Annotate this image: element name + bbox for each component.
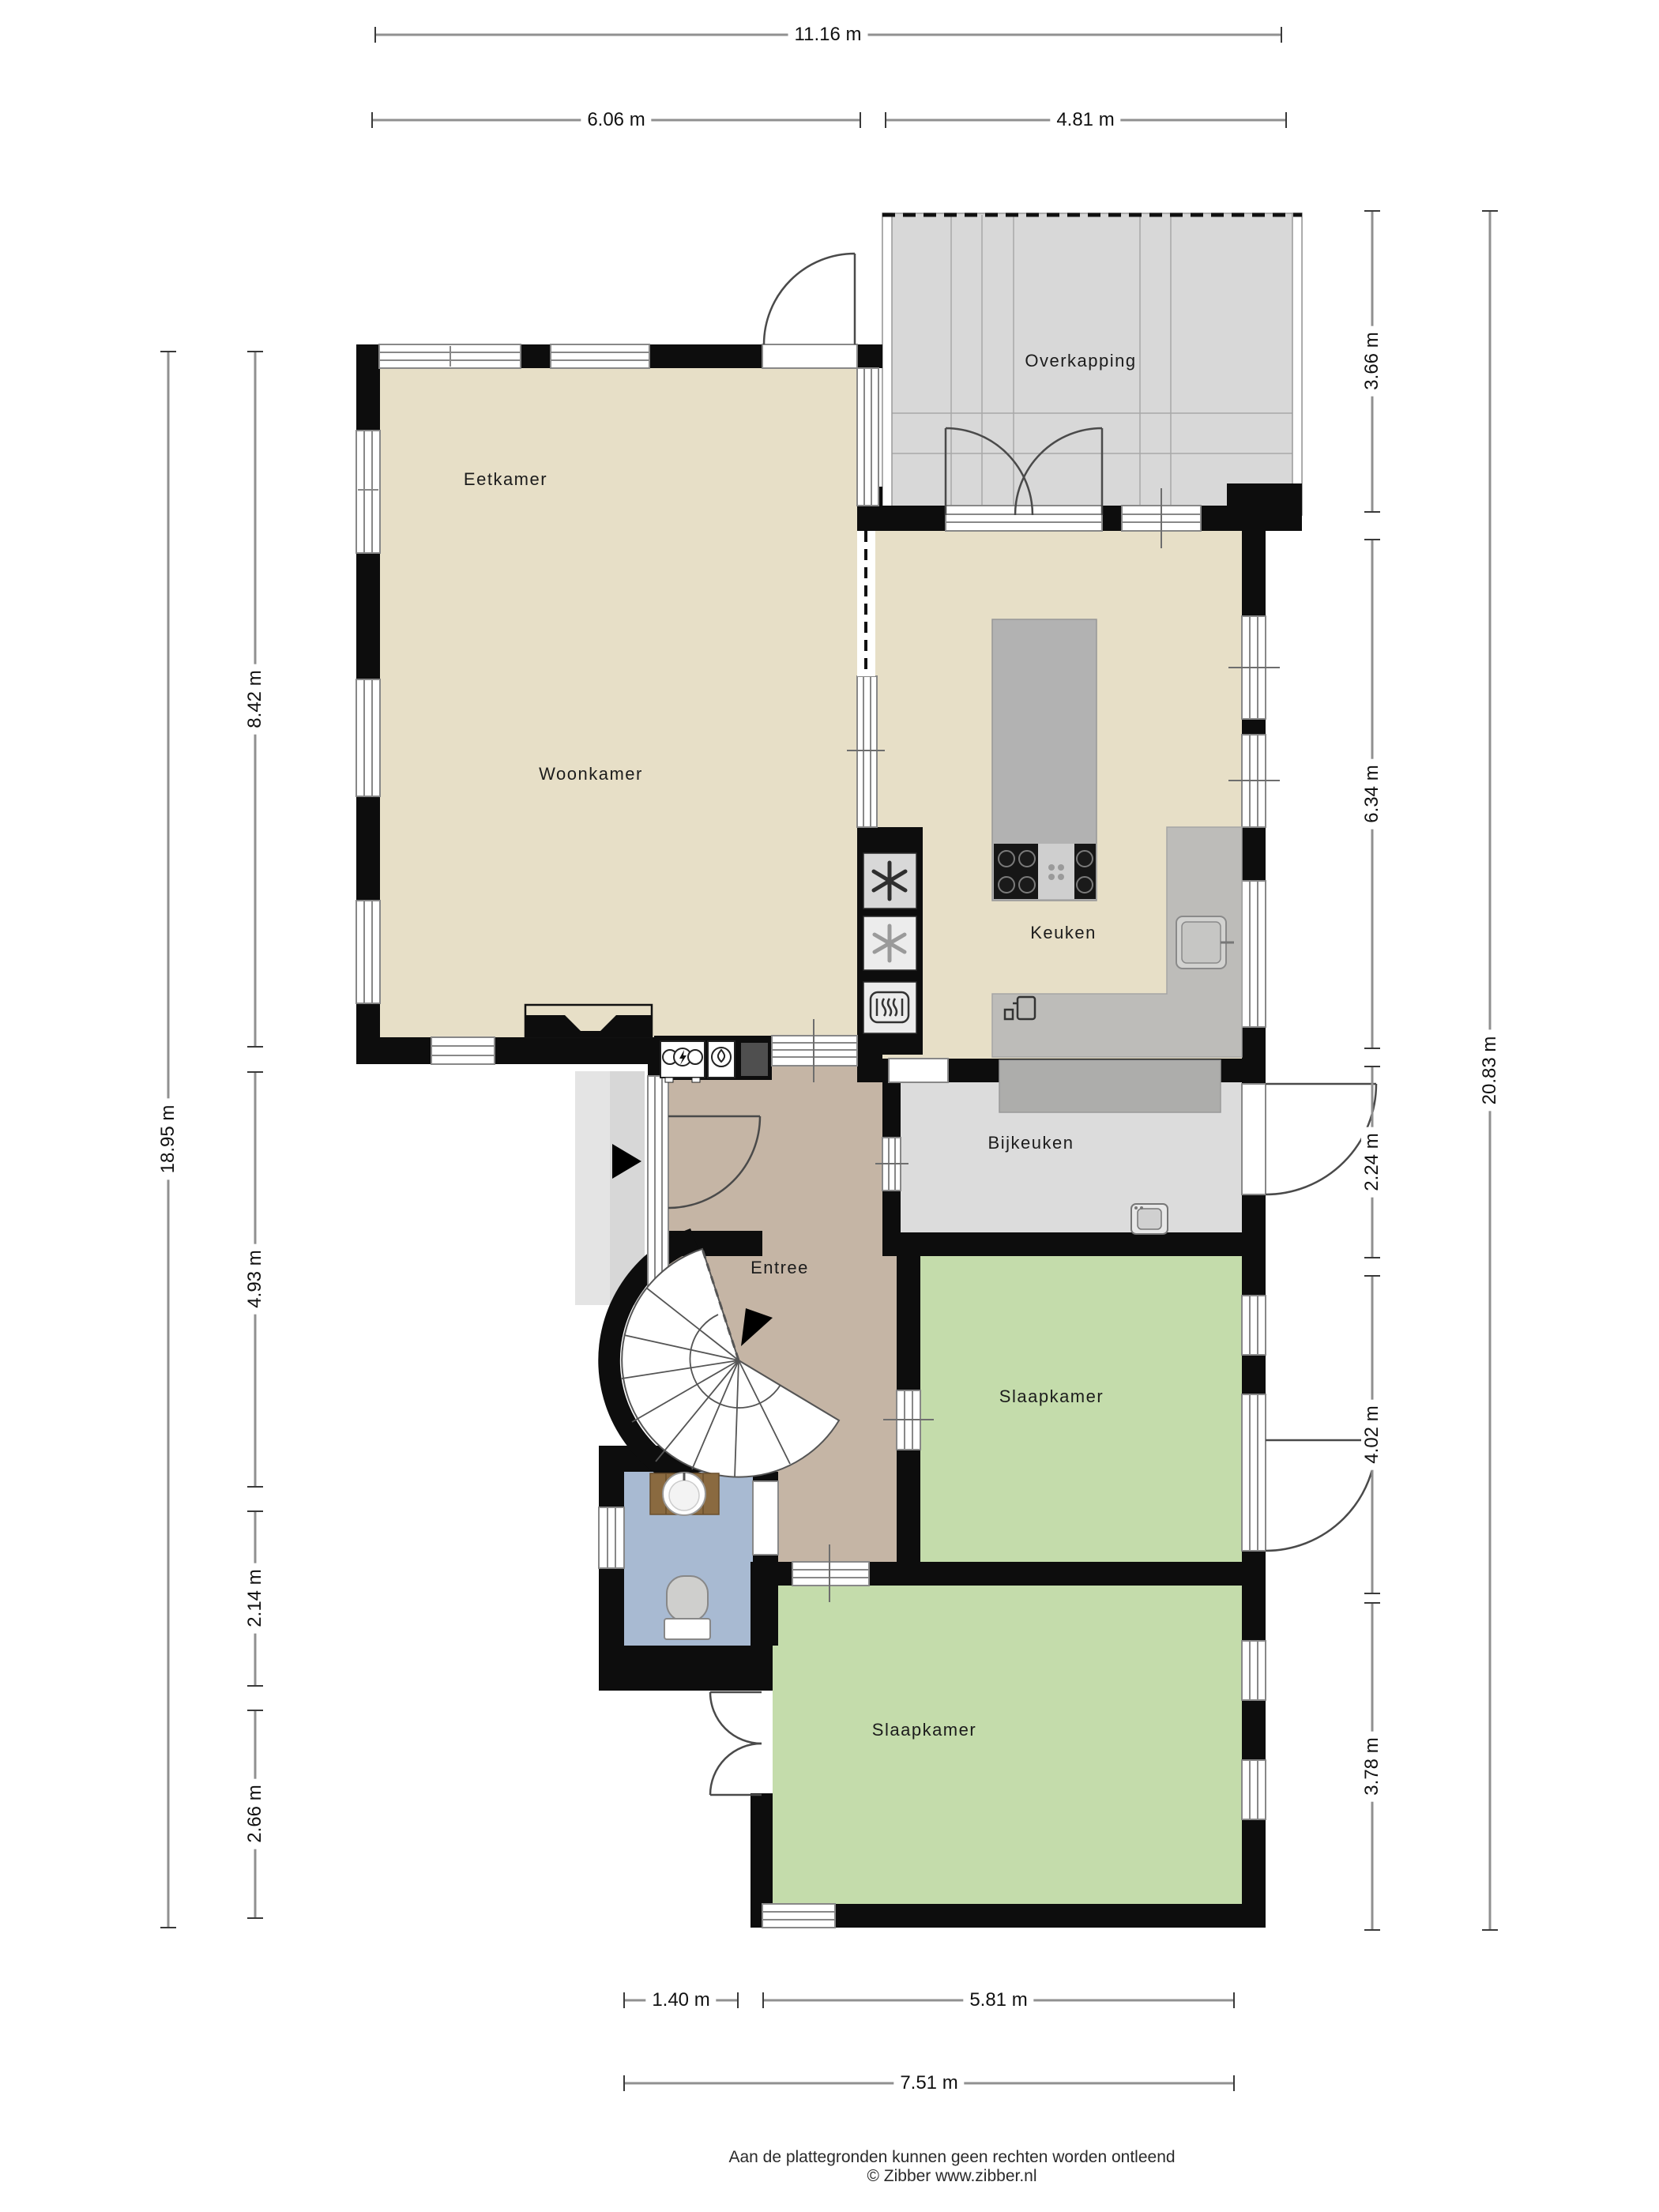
dim-bottom-total: 7.51 m	[893, 2072, 964, 2094]
dim-left-seg-4: 2.66 m	[244, 1778, 266, 1849]
room-label-slaapkamer-1: Slaapkamer	[999, 1386, 1104, 1407]
window-living-bottom	[431, 1037, 495, 1064]
toilet-icon	[664, 1576, 710, 1639]
opening-kitchen-bijkeuken	[889, 1059, 948, 1082]
floor-bedroom-2	[773, 1586, 1242, 1904]
bedroom1-door-swing	[1266, 1440, 1376, 1551]
dim-right-seg-3: 2.24 m	[1361, 1127, 1383, 1197]
room-label-slaapkamer-2: Slaapkamer	[872, 1720, 976, 1740]
floor-living-dining	[380, 368, 869, 1037]
door-opening-bijkeuken	[1242, 1084, 1266, 1194]
fireplace	[525, 1005, 652, 1037]
dim-top-total: 11.16 m	[788, 24, 868, 46]
dim-right-seg-5: 3.78 m	[1361, 1731, 1383, 1801]
dim-right-seg-1: 3.66 m	[1361, 325, 1383, 396]
room-label-entree: Entree	[750, 1258, 809, 1278]
room-label-eetkamer: Eetkamer	[464, 469, 547, 490]
dim-left-seg-3: 2.14 m	[244, 1563, 266, 1633]
room-label-bijkeuken: Bijkeuken	[988, 1133, 1074, 1153]
french-door-opening	[946, 506, 1102, 531]
dim-top-right: 4.81 m	[1050, 109, 1120, 131]
dim-right-total: 20.83 m	[1479, 1030, 1501, 1112]
window-east-kitchen-3	[1242, 881, 1266, 1027]
window-top-2	[551, 344, 649, 368]
floorplan-svg	[0, 0, 1659, 2212]
bedroom2-double-door-bottom	[710, 1744, 762, 1795]
dim-left-seg-2: 4.93 m	[244, 1243, 266, 1314]
window-bedroom2-bottom	[762, 1904, 835, 1928]
kitchen-sink-icon	[1176, 916, 1234, 969]
footer-disclaimer: Aan de plattegronden kunnen geen rechten…	[728, 2148, 1175, 2167]
glass-entree-bedroom2	[792, 1562, 869, 1586]
room-label-keuken: Keuken	[1030, 923, 1097, 943]
dim-left-seg-1: 8.42 m	[244, 664, 266, 734]
dim-top-left: 6.06 m	[581, 109, 651, 131]
window-left-1	[356, 431, 380, 553]
dim-left-total: 18.95 m	[157, 1099, 179, 1180]
dim-right-seg-2: 6.34 m	[1361, 758, 1383, 829]
washbasin-icon	[663, 1473, 705, 1515]
window-bedroom2-2	[1242, 1760, 1266, 1819]
divider-dining-kitchen	[857, 531, 875, 676]
room-label-woonkamer: Woonkamer	[539, 764, 643, 784]
dim-bottom-left: 1.40 m	[645, 1989, 716, 2011]
bijkeuken-door-swing	[1266, 1084, 1376, 1194]
appliance-column	[863, 853, 916, 1033]
cooktop-icon	[994, 844, 1096, 899]
duct	[741, 1043, 768, 1076]
bijkeuken-counter	[999, 1060, 1221, 1112]
floor-bedroom-1	[920, 1256, 1242, 1562]
floorplan: Eetkamer Woonkamer Keuken Overkapping Bi…	[0, 0, 1659, 2212]
window-door-bedroom1	[1242, 1394, 1266, 1551]
door-north-swing	[764, 254, 855, 344]
dim-right-seg-4: 4.02 m	[1361, 1399, 1383, 1469]
window-dining-overkapping	[857, 368, 878, 506]
bedroom2-double-door-top	[710, 1692, 762, 1744]
window-bathroom	[599, 1507, 624, 1568]
window-top-1	[379, 344, 521, 368]
window-left-3	[356, 901, 380, 1003]
washing-machine-icon	[1131, 1204, 1168, 1234]
door-opening-bathroom	[753, 1481, 778, 1555]
dim-bottom-right: 5.81 m	[963, 1989, 1033, 2011]
window-bedroom2-1	[1242, 1641, 1266, 1700]
window-dining-kitchen	[857, 676, 877, 827]
room-label-overkapping: Overkapping	[1025, 351, 1136, 371]
window-bedroom1-1	[1242, 1296, 1266, 1355]
window-left-2	[356, 679, 380, 796]
door-opening-north	[762, 344, 857, 368]
footer-copyright: © Zibber www.zibber.nl	[867, 2167, 1036, 2186]
